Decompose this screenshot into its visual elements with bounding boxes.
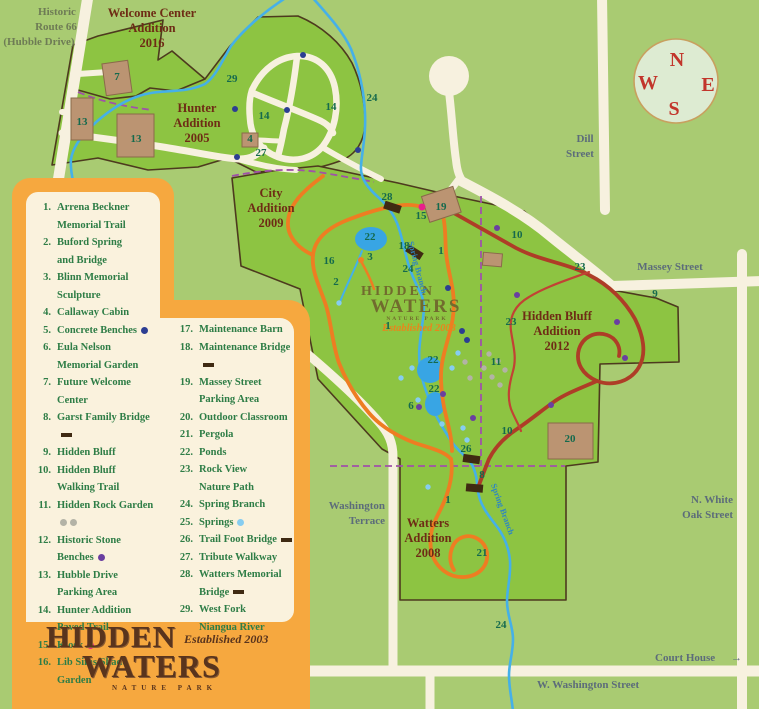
bridge-marker-icon (233, 590, 244, 594)
legend-item-number: 1. (30, 199, 51, 234)
compass-rose: N W E S (634, 39, 718, 123)
legend-item-label: Arrena Beckner Memorial Trail (57, 199, 129, 234)
road-dill-street (602, 0, 605, 210)
legend-item-number: 4. (30, 304, 51, 322)
map-number-label: 1 (438, 245, 444, 257)
map-number-label: 7 (114, 71, 120, 83)
legend-item-label: Hidden Bluff (57, 444, 116, 462)
purple-feature-dot (440, 391, 446, 397)
trail-cabin-spur (258, 140, 282, 141)
purple-feature-dot (614, 319, 620, 325)
map-number-label: 10 (512, 229, 524, 241)
map-number-label: 14 (326, 101, 338, 113)
legend-item-label: Blinn Memorial Sculpture (57, 269, 128, 304)
map-number-label: 22 (428, 354, 440, 366)
legend-item-label: Maintenance Barn (199, 321, 283, 339)
legend-item: 6.Eula Nelson Memorial Garden (30, 339, 160, 374)
logo-established: Established 2003 (184, 632, 268, 647)
street-label: Street (566, 148, 594, 160)
map-number-label: 2 (333, 276, 339, 288)
gray-feature-dot (489, 374, 494, 379)
map-number-label: 29 (227, 73, 239, 85)
map-number-label: 4 (247, 133, 253, 145)
legend-item: 18.Maintenance Bridge (172, 339, 294, 374)
bridge-marker-icon (281, 538, 292, 542)
legend-item: 9.Hidden Bluff (30, 444, 160, 462)
legend-item-number: 5. (30, 322, 51, 340)
dot-navy-icon (141, 327, 148, 334)
legend-item-number: 18. (172, 339, 193, 374)
street-label: Dill (576, 133, 593, 145)
legend-item-number: 11. (30, 497, 51, 532)
map-number-label: 24 (367, 92, 379, 104)
legend-item-number: 6. (30, 339, 51, 374)
map-number-label: 10 (502, 425, 514, 437)
map-number-label: 28 (382, 191, 394, 203)
legend-item-number: 25. (172, 514, 193, 532)
legend-item-number: 9. (30, 444, 51, 462)
legend-item: 20.Outdoor Classroom (172, 409, 294, 427)
ltblue-feature-dot (398, 375, 403, 380)
legend-item-number: 2. (30, 234, 51, 269)
logo-nature-park: NATURE PARK (112, 684, 276, 692)
dot-purple-icon (98, 554, 105, 561)
legend-item-label: Rock View Nature Path (199, 461, 254, 496)
street-label: Historic (38, 6, 76, 18)
legend-item-label: Outdoor Classroom (199, 409, 288, 427)
legend-item-label: Garst Family Bridge (57, 409, 160, 444)
navy-feature-dot (355, 147, 361, 153)
legend-item-label: Hubble Drive Parking Area (57, 567, 118, 602)
map-number-label: 15 (416, 210, 428, 222)
legend-item: 8.Garst Family Bridge (30, 409, 160, 444)
legend-item-label: Ponds (199, 444, 226, 462)
street-label: (Hubble Drive) (3, 36, 75, 48)
ltblue-feature-dot (455, 350, 460, 355)
legend-item: 13.Hubble Drive Parking Area (30, 567, 160, 602)
ltblue-feature-dot (449, 365, 454, 370)
navy-feature-dot (459, 328, 465, 334)
orange-feature-dot (358, 257, 364, 263)
legend-item-number: 21. (172, 426, 193, 444)
compass-east: E (701, 74, 714, 96)
legend-item-number: 23. (172, 461, 193, 496)
ltblue-feature-dot (464, 437, 469, 442)
gray-feature-dot (502, 367, 507, 372)
watermark-nature-park: NATURE PARK (386, 316, 447, 322)
navy-feature-dot (232, 106, 238, 112)
map-number-label: 1 (445, 494, 451, 506)
ltblue-feature-dot (439, 421, 444, 426)
legend-item-number: 13. (30, 567, 51, 602)
legend-item-number: 28. (172, 566, 193, 601)
ltblue-feature-dot (425, 484, 430, 489)
legend-item-number: 7. (30, 374, 51, 409)
street-label: Terrace (349, 515, 385, 527)
watermark-established: Established 2003 (381, 323, 456, 334)
map-number-label: 23 (575, 261, 587, 273)
legend-item-number: 26. (172, 531, 193, 549)
navy-feature-dot (234, 154, 240, 160)
map-number-label: 3 (367, 251, 373, 263)
map-number-label: 13 (131, 133, 143, 145)
navy-feature-dot (300, 52, 306, 58)
legend-item-label: Trail Foot Bridge (199, 531, 292, 549)
legend-item: 26.Trail Foot Bridge (172, 531, 294, 549)
map-number-label: 24 (403, 263, 415, 275)
legend-item: 2.Buford Spring and Bridge (30, 234, 160, 269)
legend-item: 27.Tribute Walkway (172, 549, 294, 567)
gray-feature-dot (497, 382, 502, 387)
legend-item-number: 10. (30, 462, 51, 497)
logo-waters: WATERS (82, 652, 276, 680)
street-label: N. White (691, 494, 733, 506)
watermark-waters: WATERS (371, 296, 462, 317)
map-number-label: 11 (491, 356, 501, 368)
legend-item-label: Spring Branch (199, 496, 265, 514)
legend-column-2: 17.Maintenance Barn18.Maintenance Bridge… (172, 321, 294, 636)
legend-item-label: Pergola (199, 426, 233, 444)
legend-item-number: 8. (30, 409, 51, 444)
map-number-label: 27 (256, 147, 268, 159)
legend-item: 25.Springs (172, 514, 294, 532)
street-label: Oak Street (682, 509, 733, 521)
building-maintenance-barn (482, 252, 502, 267)
map-number-label: 14 (259, 110, 271, 122)
map-number-label: 16 (324, 255, 336, 267)
compass-west: W (638, 72, 658, 94)
legend-item: 12.Historic Stone Benches (30, 532, 160, 567)
map-number-label: 13 (77, 116, 89, 128)
legend-item: 22.Ponds (172, 444, 294, 462)
legend-item-number: 20. (172, 409, 193, 427)
legend-item-label: Callaway Cabin (57, 304, 129, 322)
park-logo: HIDDEN Established 2003 WATERS NATURE PA… (46, 622, 276, 692)
legend-item: 28.Watters Memorial Bridge (172, 566, 294, 601)
map-number-label: 22 (429, 383, 441, 395)
street-label: Court House (655, 652, 715, 664)
purple-feature-dot (548, 402, 554, 408)
legend-item: 21.Pergola (172, 426, 294, 444)
navy-feature-dot (284, 107, 290, 113)
legend-item: 3.Blinn Memorial Sculpture (30, 269, 160, 304)
legend-item-label: Future Welcome Center (57, 374, 131, 409)
street-label: → (731, 652, 742, 664)
legend-item: 5.Concrete Benches (30, 322, 160, 340)
navy-feature-dot (464, 337, 470, 343)
ltblue-feature-dot (336, 300, 341, 305)
legend-item: 10.Hidden Bluff Walking Trail (30, 462, 160, 497)
legend-item-label: Tribute Walkway (199, 549, 277, 567)
map-number-label: 1 (385, 320, 391, 332)
gray-dot-icon (70, 519, 77, 526)
legend-item: 1.Arrena Beckner Memorial Trail (30, 199, 160, 234)
map-number-label: 24 (496, 619, 508, 631)
ltblue-feature-dot (409, 365, 414, 370)
legend-item-number: 12. (30, 532, 51, 567)
map-number-label: 20 (565, 433, 577, 445)
street-label: Route 66 (35, 21, 77, 33)
legend-item: 17.Maintenance Barn (172, 321, 294, 339)
legend-item-label: Watters Memorial Bridge (199, 566, 282, 601)
legend-item: 19.Massey Street Parking Area (172, 374, 294, 409)
map-number-label: 18 (399, 240, 411, 252)
legend-item: 7.Future Welcome Center (30, 374, 160, 409)
ltblue-feature-dot (460, 425, 465, 430)
gray-feature-dot (462, 359, 467, 364)
legend-item-label: Massey Street Parking Area (199, 374, 262, 409)
map-number-label: 21 (477, 547, 488, 559)
legend-column-1: 1.Arrena Beckner Memorial Trail2.Buford … (30, 199, 160, 689)
legend-item-number: 27. (172, 549, 193, 567)
map-number-label: 22 (365, 231, 377, 243)
legend-item-label: Maintenance Bridge (199, 339, 294, 374)
street-label: Massey Street (637, 261, 703, 273)
legend-item-number: 17. (172, 321, 193, 339)
gray-dot-icon (60, 519, 67, 526)
legend-item: 23.Rock View Nature Path (172, 461, 294, 496)
purple-feature-dot (514, 292, 520, 298)
gray-feature-dot (481, 365, 486, 370)
purple-feature-dot (622, 355, 628, 361)
legend-item-label: Springs (199, 514, 244, 532)
legend-item-label: Concrete Benches (57, 322, 148, 340)
bridge-garst-family (466, 483, 484, 492)
legend-item: 4.Callaway Cabin (30, 304, 160, 322)
legend-item-number: 3. (30, 269, 51, 304)
legend-item: 24.Spring Branch (172, 496, 294, 514)
purple-feature-dot (494, 225, 500, 231)
map-number-label: 19 (436, 201, 448, 213)
legend-item-number: 24. (172, 496, 193, 514)
compass-north: N (670, 49, 685, 71)
legend-item-label: Eula Nelson Memorial Garden (57, 339, 138, 374)
navy-feature-dot (445, 285, 451, 291)
legend-item-label: Hidden Rock Garden (57, 497, 160, 532)
dot-ltblue-icon (237, 519, 244, 526)
gray-feature-dot (467, 375, 472, 380)
street-label: W. Washington Street (537, 679, 640, 691)
legend-item-label: Hidden Bluff Walking Trail (57, 462, 119, 497)
legend-item-label: Historic Stone Benches (57, 532, 160, 567)
map-number-label: 23 (506, 316, 518, 328)
legend-item-number: 19. (172, 374, 193, 409)
legend-item-label: Buford Spring and Bridge (57, 234, 122, 269)
bridge-marker-icon (61, 433, 72, 437)
street-label: Washington (329, 500, 385, 512)
purple-feature-dot (416, 404, 422, 410)
park-map-page: HIDDEN WATERS NATURE PARK Established 20… (0, 0, 759, 709)
compass-south: S (668, 98, 679, 120)
map-number-label: 26 (461, 443, 473, 455)
legend-item-number: 22. (172, 444, 193, 462)
bridge-marker-icon (203, 363, 214, 367)
map-number-label: 9 (652, 288, 658, 300)
ltblue-feature-dot (415, 397, 420, 402)
purple-feature-dot (470, 415, 476, 421)
map-number-label: 8 (479, 469, 485, 481)
legend-item: 11.Hidden Rock Garden (30, 497, 160, 532)
map-number-label: 6 (408, 400, 414, 412)
